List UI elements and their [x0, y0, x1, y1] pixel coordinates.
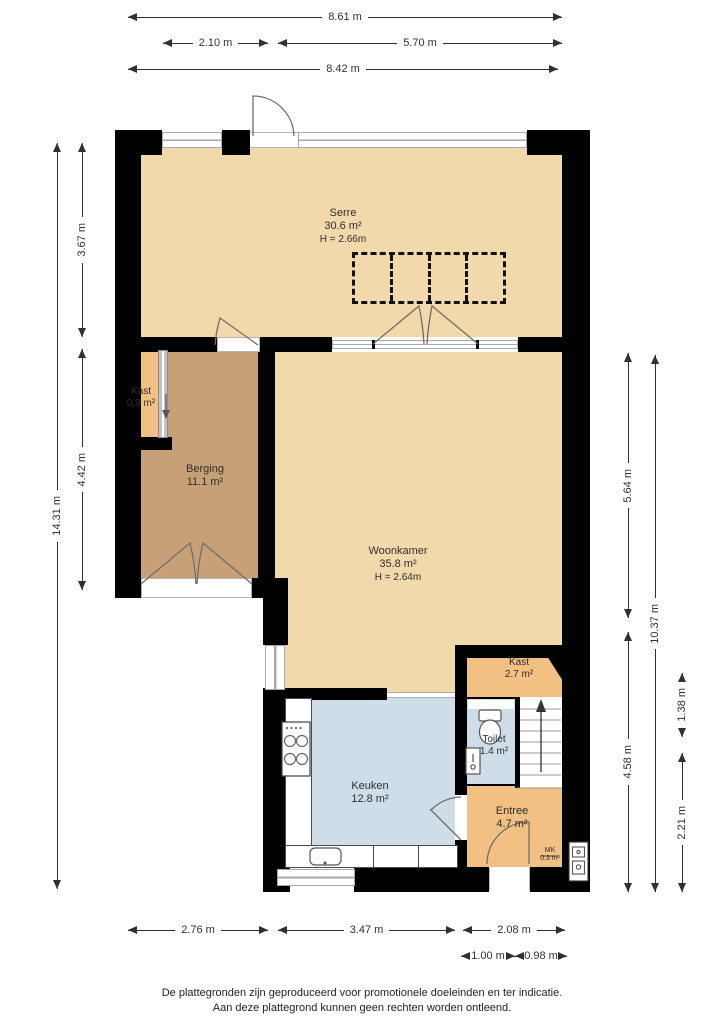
- woonkamer-floor: [268, 345, 562, 694]
- dim-bottom-entree: 2.08 m: [463, 924, 565, 936]
- room-label-kast1: Kast 0.9 m²: [118, 386, 164, 410]
- counter-divider: [418, 845, 419, 868]
- dim-top-total: 8.61 m: [128, 11, 562, 23]
- window: [298, 132, 527, 148]
- door-opening-serre-berging: [217, 337, 260, 352]
- mullion: [372, 340, 375, 349]
- dim-right-lower: 4.58 m: [622, 632, 634, 892]
- mullion: [476, 340, 479, 349]
- dim-right-kast: 1.38 m: [676, 673, 688, 737]
- disclaimer-line1: De plattegronden zijn geproduceerd voor …: [0, 986, 724, 1001]
- dim-bottom-berging: 2.76 m: [128, 924, 268, 936]
- wall: [530, 867, 590, 892]
- room-name: MK: [534, 847, 566, 855]
- door-opening-berging-exterior: [141, 578, 252, 598]
- dim-top-right-segment: 5.70 m: [278, 37, 562, 49]
- room-label-meterkast: MK 0.3 m²: [534, 847, 566, 863]
- room-name: Kast: [118, 386, 164, 398]
- room-name: Keuken: [320, 780, 420, 793]
- window: [162, 132, 222, 148]
- room-area: 0.9 m²: [118, 398, 164, 410]
- wall-berging-right: [258, 352, 275, 598]
- wall-lowerleft-upper: [263, 578, 288, 645]
- kitchen-counter-left: [285, 698, 312, 848]
- dim-bottom-sub-left: 1.00 m: [461, 950, 515, 962]
- room-area: 0.3 m²: [534, 855, 566, 863]
- dim-bottom-sub-right: 0.98 m: [515, 950, 567, 962]
- window-left: [265, 645, 285, 690]
- dim-bottom-keuken: 3.47 m: [278, 924, 455, 936]
- wall-left: [115, 130, 141, 598]
- dim-right-woonkamer: 5.64 m: [622, 353, 634, 618]
- dim-left-total: 14.31 m: [51, 143, 63, 889]
- window-bottom: [277, 869, 355, 886]
- room-name: Serre: [283, 207, 403, 220]
- wall-kast1-bottom: [115, 437, 172, 450]
- room-name: Entree: [472, 805, 552, 818]
- wall: [115, 578, 141, 598]
- dim-left-serre: 3.67 m: [76, 143, 88, 337]
- room-label-entree: Entree 4.7 m²: [472, 805, 552, 831]
- floorplan-page: Serre 30.6 m² H = 2.66m Kast 0.9 m² Berg…: [0, 0, 724, 1024]
- counter-divider: [373, 845, 374, 868]
- dim-right-entree: 2.21 m: [676, 753, 688, 892]
- room-name: Toilet: [466, 734, 522, 746]
- dim-left-berging: 4.42 m: [76, 349, 88, 590]
- dim-top-left-segment: 2.10 m: [163, 37, 268, 49]
- staircase: [517, 697, 562, 788]
- room-area: 2.7 m²: [479, 669, 559, 681]
- room-area: 30.6 m²: [283, 220, 403, 233]
- disclaimer-line2: Aan deze plattegrond kunnen geen rechten…: [0, 1001, 724, 1016]
- room-label-keuken: Keuken 12.8 m²: [320, 780, 420, 806]
- room-name: Woonkamer: [338, 545, 458, 558]
- room-area: 1.4 m²: [466, 746, 522, 758]
- room-name: Berging: [160, 463, 250, 476]
- room-name: Kast: [479, 657, 559, 669]
- serre-roof-skylight: [352, 252, 506, 304]
- room-label-toilet: Toilet 1.4 m²: [466, 734, 522, 758]
- room-area: 4.7 m²: [472, 818, 552, 831]
- wall: [518, 337, 590, 352]
- door-opening-serre-exterior: [250, 132, 298, 148]
- room-height: H = 2.66m: [283, 233, 403, 246]
- wall: [222, 130, 250, 155]
- glazed-wall: [332, 340, 518, 349]
- wall: [260, 337, 332, 352]
- room-area: 11.1 m²: [160, 476, 250, 489]
- room-label-berging: Berging 11.1 m²: [160, 463, 250, 489]
- room-area: 35.8 m²: [338, 558, 458, 571]
- threshold-woonkamer-keuken: [387, 692, 455, 698]
- room-label-serre: Serre 30.6 m² H = 2.66m: [283, 207, 403, 246]
- door-opening-entree-front: [489, 868, 530, 890]
- wall-right: [562, 130, 590, 892]
- door-arc-serre-exterior: [253, 96, 294, 136]
- room-area: 12.8 m²: [320, 793, 420, 806]
- room-label-woonkamer: Woonkamer 35.8 m² H = 2.64m: [338, 545, 458, 584]
- wall-bottom-mid: [354, 867, 489, 892]
- door-opening-keuken: [455, 795, 467, 840]
- dim-top-inner: 8.42 m: [128, 63, 558, 75]
- room-height: H = 2.64m: [338, 571, 458, 584]
- room-label-kast2: Kast 2.7 m²: [479, 657, 559, 681]
- dim-right-total: 10.37 m: [649, 355, 661, 892]
- disclaimer: De plattegronden zijn geproduceerd voor …: [0, 986, 724, 1016]
- toilet-threshold: [468, 700, 514, 709]
- kitchen-counter-bottom: [285, 845, 458, 868]
